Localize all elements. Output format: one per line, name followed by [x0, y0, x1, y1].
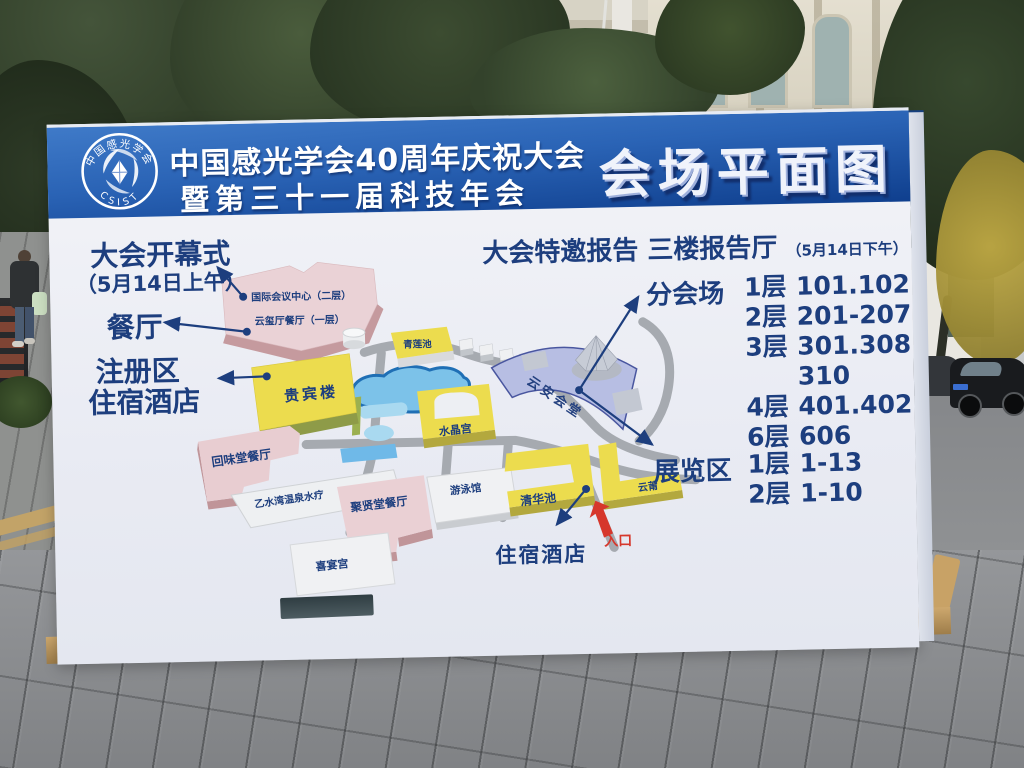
- roof-tower: [612, 0, 632, 32]
- session-row: 3层301.308: [745, 329, 912, 362]
- pedestrian-shoe: [12, 341, 24, 347]
- exhibition-row: 2层1-10: [748, 477, 863, 509]
- report-time: （5月14日下午）: [786, 239, 908, 259]
- sign-header: 中国感光学会 CSIST 中国感光学会40周年庆祝大会 暨第三十一届科技年会 会…: [47, 107, 911, 218]
- label-qinglian: 青莲池: [403, 338, 432, 351]
- report-title-text: 大会特邀报告 三楼报告厅: [482, 233, 778, 269]
- license-plate: [953, 384, 968, 390]
- photo-scene: 中国感光学会 CSIST 中国感光学会40周年庆祝大会 暨第三十一届科技年会 会…: [0, 0, 1024, 768]
- exhibition-floor: 1层: [747, 449, 800, 480]
- session-floor: [746, 385, 798, 386]
- pedestrian-bag: [32, 292, 47, 315]
- car-wheel: [958, 394, 982, 418]
- exhibition-rooms: 1-10: [800, 477, 863, 507]
- board-handle-slot: [280, 594, 374, 619]
- csist-logo: 中国感光学会 CSIST: [77, 128, 163, 214]
- exhibition-label: 展览区: [653, 450, 732, 489]
- exhibition-floor: 2层: [748, 479, 801, 510]
- session-rooms: 606: [799, 421, 852, 451]
- session-row: 4层401.402: [746, 389, 913, 422]
- label-entrance: 入口: [604, 533, 632, 550]
- sessions-list: 1层101.102 2层201-207 3层301.308 310 4层401.…: [744, 269, 914, 452]
- session-rooms: 101.102: [796, 269, 910, 300]
- exhibition-rooms: 1-13: [799, 447, 862, 477]
- exhibition-row: 1层1-13: [747, 447, 862, 479]
- sessions-label: 分会场: [646, 273, 725, 312]
- session-row: 310: [746, 359, 913, 392]
- label-lodging: 住宿酒店: [495, 542, 587, 568]
- session-rooms: 201-207: [796, 299, 911, 330]
- map-panel: 国际会议中心（二层） 云玺厅餐厅（一层） 贵宾楼 青莲池: [49, 201, 920, 664]
- crystal-courtyard: [434, 392, 480, 419]
- map-title: 会场平面图: [598, 127, 894, 208]
- car-wheel: [1002, 392, 1024, 416]
- session-row: 2层201-207: [744, 299, 911, 332]
- near-building-window: [812, 14, 852, 108]
- session-rooms: 401.402: [798, 389, 912, 420]
- callout-opening-time: （5月14日上午）: [76, 266, 246, 299]
- logo-emblem: [103, 148, 139, 193]
- session-rooms: 310: [798, 361, 851, 391]
- session-floor: 4层: [746, 392, 799, 423]
- car-windshield: [960, 362, 1005, 376]
- session-floor: 3层: [745, 332, 798, 363]
- exhibition-list: 1层1-13 2层1-10: [747, 447, 863, 509]
- session-floor: 2层: [744, 302, 797, 333]
- pedestrian-leg: [25, 307, 34, 340]
- cylinder-top: [343, 328, 365, 337]
- callout-registration-hotel: 住宿酒店: [88, 380, 201, 422]
- pedestrian-shoe: [24, 338, 35, 344]
- session-rooms: 301.308: [797, 329, 911, 360]
- session-row: 1层101.102: [744, 269, 911, 302]
- signboard: 中国感光学会 CSIST 中国感光学会40周年庆祝大会 暨第三十一届科技年会 会…: [47, 107, 920, 664]
- callout-dining: 餐厅: [106, 305, 163, 346]
- session-floor: 1层: [744, 272, 797, 303]
- pedestrian-leg: [15, 307, 24, 343]
